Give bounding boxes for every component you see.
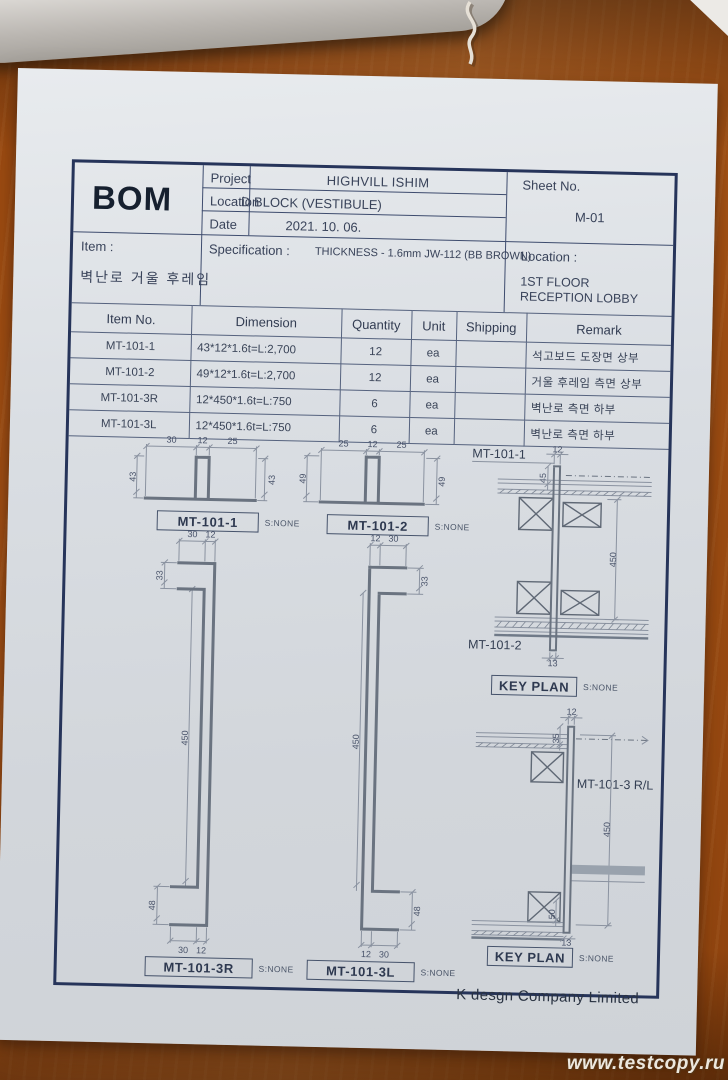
key-plan-section-1: MT-101-1 12 45 450: [466, 444, 661, 668]
specification-label: Specification :: [209, 241, 290, 258]
bom-sheet-paper: BOM Project HIGHVILL ISHIM Location D BL…: [0, 68, 718, 1056]
dim-label: 12: [367, 439, 377, 449]
drawing-label-mt-101-3l: MT-101-3L: [306, 960, 414, 982]
callout-label: MT-101-1: [472, 446, 526, 461]
photo-of-bom-document: BOM Project HIGHVILL ISHIM Location D BL…: [0, 0, 728, 1080]
scale-note: S:NONE: [579, 953, 614, 964]
cell-dimension: 43*12*1.6t=L:2,700: [190, 334, 341, 363]
dim-label: 30: [187, 529, 197, 539]
date-label: Date: [209, 216, 237, 232]
dim-label: 13: [548, 658, 558, 668]
cell-item-no: MT-101-1: [70, 332, 191, 361]
company-name: K desgn Company Limited: [456, 986, 639, 1007]
dim-label: 12: [370, 533, 380, 543]
dim-label: 13: [561, 938, 571, 948]
cell-quantity: 6: [339, 390, 410, 418]
project-label: Project: [210, 170, 251, 186]
dim-label: 33: [419, 576, 429, 586]
cell-dimension: 49*12*1.6t=L:2,700: [190, 360, 341, 389]
callout-label: MT-101-3 R/L: [577, 777, 654, 793]
thread-on-desk: [440, 0, 500, 70]
dim-label: 12: [566, 707, 576, 717]
ceiling-layer-lines: [497, 479, 651, 496]
item-value: 벽난로 거울 후레임: [80, 266, 211, 289]
watermark: www.testcopy.ru: [567, 1053, 725, 1075]
dim-label: 12: [361, 949, 371, 959]
cell-shipping: [455, 366, 526, 394]
col-header-dimension: Dimension: [191, 306, 342, 338]
col-header-item-no: Item No.: [71, 303, 192, 335]
parts-table: Item No. Dimension Quantity Unit Shippin…: [69, 302, 672, 450]
dim-label: 49: [437, 477, 447, 487]
cell-remark: 거울 후레임 측면 상부: [525, 368, 671, 397]
dim-label: 48: [412, 906, 422, 916]
location2-label: Location :: [521, 248, 578, 264]
cell-unit: ea: [409, 391, 455, 418]
metal-strip-section: [564, 727, 575, 933]
item-label: Item :: [81, 238, 114, 254]
cell-remark: 벽난로 측면 하부: [524, 420, 670, 449]
cell-unit: ea: [410, 339, 456, 366]
cell-shipping: [454, 392, 525, 420]
cell-shipping: [455, 341, 526, 369]
dim-label: 12: [205, 529, 215, 539]
date-value: 2021. 10. 06.: [285, 218, 361, 235]
cell-shipping: [454, 418, 525, 446]
cell-quantity: 12: [340, 364, 411, 392]
drawing-border-frame: BOM Project HIGHVILL ISHIM Location D BL…: [53, 159, 678, 999]
dim-label: 35: [551, 733, 561, 743]
scale-note: S:NONE: [420, 967, 455, 978]
dim-label: 43: [128, 472, 138, 482]
col-header-unit: Unit: [411, 310, 457, 340]
dim-label: 12: [196, 945, 206, 955]
bom-title: BOM: [92, 179, 173, 219]
dim-label: 45: [538, 473, 548, 483]
cell-item-no: MT-101-3R: [69, 384, 190, 413]
col-header-shipping: Shipping: [456, 312, 527, 343]
dim-label: 12: [197, 435, 207, 445]
callout-label: MT-101-2: [468, 637, 522, 652]
dim-label: 33: [154, 570, 164, 580]
cell-dimension: 12*450*1.6t=L:750: [189, 386, 340, 415]
metal-profile-outline: [145, 456, 256, 500]
dim-label: 25: [396, 440, 406, 450]
strip-drawing-mt-101-3r: 30 12 33 450 48 30 12: [142, 524, 272, 957]
cell-unit: ea: [410, 365, 456, 392]
dim-label: 450: [180, 730, 190, 745]
cell-remark: 벽난로 측면 하부: [524, 394, 670, 423]
dim-label: 25: [227, 436, 237, 446]
specification-value: THICKNESS - 1.6mm JW-112 (BB BROWN): [315, 246, 532, 263]
col-header-quantity: Quantity: [341, 309, 412, 340]
metal-profile-outline: [320, 456, 424, 504]
key-plan-section-2: 12 35 MT-101-3 R/L 450 50: [465, 706, 655, 948]
dim-label: 43: [267, 475, 277, 485]
location2-line1: 1ST FLOOR: [520, 274, 590, 290]
scale-note: S:NONE: [259, 964, 294, 975]
shelf-edge-bar: [571, 865, 645, 876]
dim-label: 450: [608, 552, 618, 567]
dim-label: 12: [552, 444, 562, 454]
metal-strip-outline: [362, 567, 406, 930]
location-value: D BLOCK (VESTIBULE): [241, 194, 382, 212]
scale-note: S:NONE: [435, 522, 470, 533]
key-plan-title: KEY PLAN: [491, 675, 577, 697]
cell-quantity: 12: [340, 338, 411, 366]
dim-label: 30: [388, 534, 398, 544]
strip-drawing-mt-101-3l: 12 30 33 450 48 12 30: [305, 528, 435, 961]
scale-note: S:NONE: [583, 682, 618, 693]
dim-label: 50: [547, 909, 557, 919]
cell-item-no: MT-101-2: [70, 358, 191, 387]
sheet-no-label: Sheet No.: [522, 177, 580, 193]
cell-remark: 석고보드 도장면 상부: [525, 342, 671, 371]
drawing-label-mt-101-3r: MT-101-3R: [144, 956, 252, 978]
dim-label: 48: [147, 900, 157, 910]
key-plan-title: KEY PLAN: [487, 946, 573, 968]
dim-label: 30: [166, 434, 176, 444]
divider-line: [73, 231, 673, 246]
dim-label: 450: [602, 822, 612, 837]
dim-label: 30: [379, 949, 389, 959]
dim-label: 49: [298, 473, 308, 483]
dim-label: 25: [338, 438, 348, 448]
col-header-remark: Remark: [526, 313, 672, 345]
dim-label: 30: [178, 945, 188, 955]
metal-strip-outline: [171, 563, 215, 926]
location2-line2: RECEPTION LOBBY: [520, 289, 638, 306]
sheet-no-value: M-01: [506, 208, 674, 227]
dim-label: 450: [351, 734, 361, 749]
